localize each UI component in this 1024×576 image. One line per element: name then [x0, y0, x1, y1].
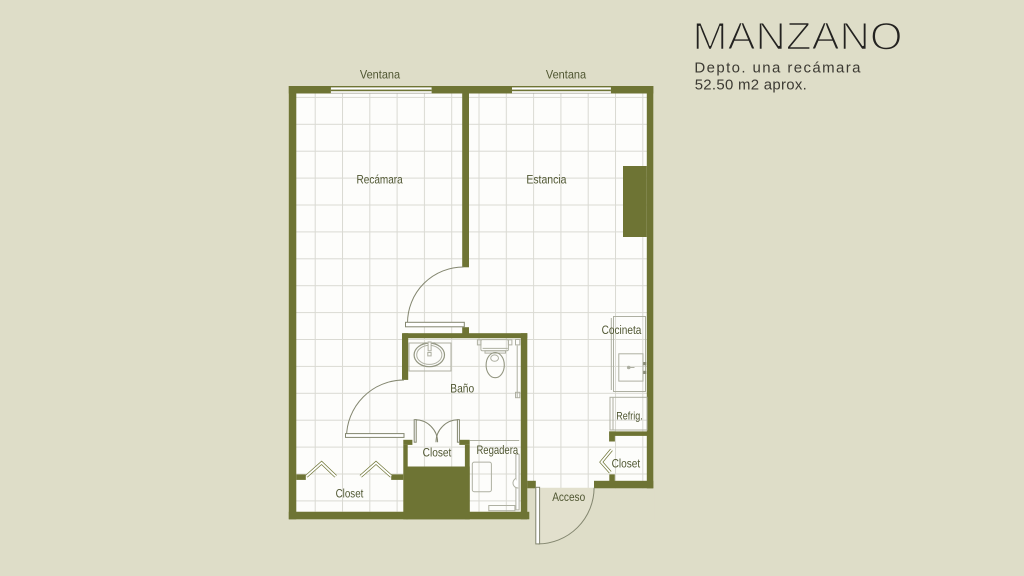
svg-text:Refrig.: Refrig.	[616, 410, 642, 422]
svg-text:Closet: Closet	[612, 457, 641, 471]
svg-text:Recámara: Recámara	[357, 173, 403, 187]
svg-text:Estancia: Estancia	[526, 173, 566, 187]
svg-text:Depto. una recámara: Depto. una recámara	[694, 59, 862, 76]
svg-text:Closet: Closet	[336, 487, 364, 501]
svg-text:Baño: Baño	[450, 381, 474, 395]
svg-text:MANZANO: MANZANO	[693, 15, 903, 58]
svg-text:Closet: Closet	[423, 446, 452, 460]
svg-text:Ventana: Ventana	[546, 68, 586, 82]
svg-text:Regadera: Regadera	[476, 443, 518, 457]
svg-text:Ventana: Ventana	[360, 68, 400, 82]
svg-text:Acceso: Acceso	[552, 490, 585, 504]
svg-text:Cocineta: Cocineta	[602, 323, 642, 337]
svg-text:52.50 m2 aprox.: 52.50 m2 aprox.	[695, 76, 807, 93]
